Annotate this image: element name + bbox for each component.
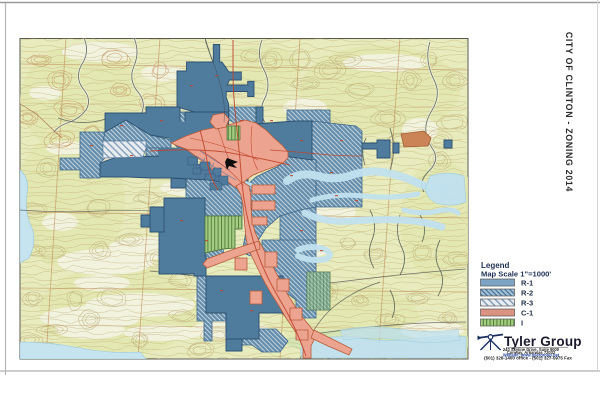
svg-text:Map Scale 1"=1000': Map Scale 1"=1000'	[481, 270, 551, 279]
svg-text:R-3: R-3	[521, 299, 533, 308]
svg-text:R-2: R-2	[521, 289, 533, 298]
svg-text:CITY OF CLINTON - ZONING 2014: CITY OF CLINTON - ZONING 2014	[564, 32, 574, 192]
svg-text:R-1: R-1	[521, 279, 534, 288]
svg-text:I: I	[521, 319, 523, 328]
svg-text:C-1: C-1	[521, 309, 534, 318]
svg-text:(501) 328-1400 office - (501: (501) 328-1400 office - (501) 327-5975 F…	[484, 355, 572, 360]
